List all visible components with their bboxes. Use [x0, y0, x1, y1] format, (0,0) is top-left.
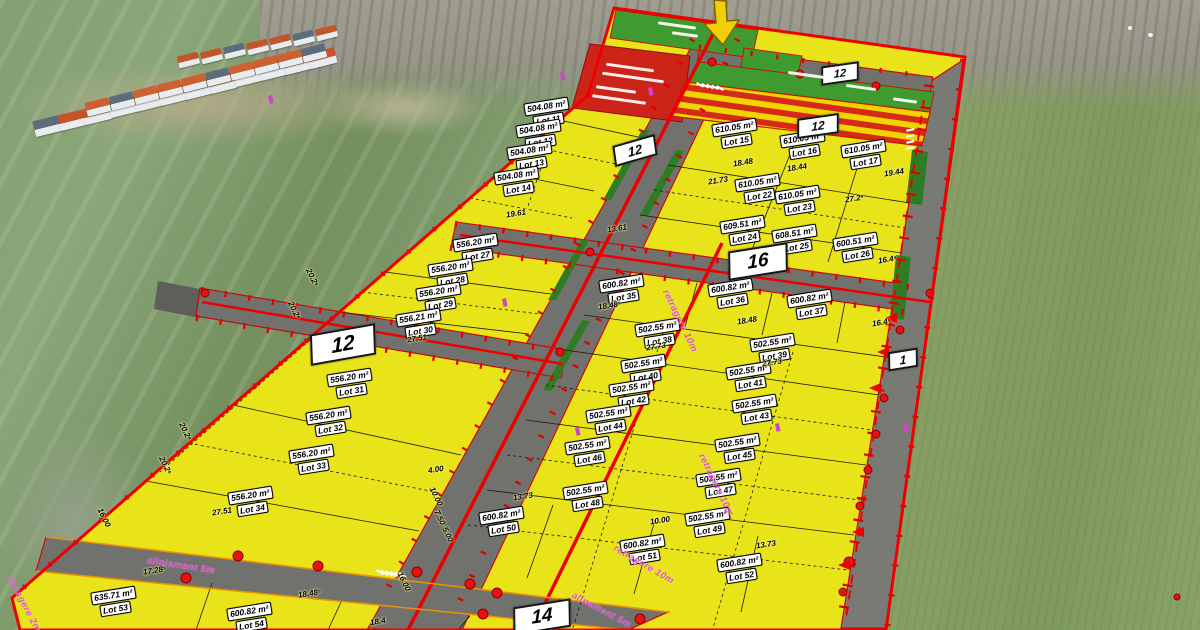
dimension-label: 13.61: [606, 222, 627, 234]
zone-text-mark: [592, 94, 646, 104]
dimension-label: 16.4⁵: [877, 254, 897, 266]
dimension-label: 27.51: [406, 332, 427, 344]
dimension-label: 20.2⁵: [286, 300, 302, 321]
dimension-label: 16.00: [96, 507, 113, 529]
lot-label: 610.05 m²Lot 17: [840, 139, 888, 172]
dimension-label: 19.44: [883, 166, 904, 178]
lot-label: 600.82 m²Lot 37: [786, 289, 834, 322]
lot-label: 600.82 m²Lot 36: [707, 278, 755, 311]
dimension-label: 13.73: [512, 490, 533, 502]
dimension-label: 13.73: [755, 538, 776, 550]
dimension-label: 5.00: [440, 526, 455, 544]
aerial-subdivision-map: 504.08 m²Lot 11504.08 m²Lot 12504.08 m²L…: [0, 0, 1200, 630]
road-badge: 14: [513, 598, 571, 630]
dimension-label: 16.4⁵: [871, 317, 891, 329]
road-badge: 16: [728, 242, 788, 281]
zone-text-mark: [658, 21, 696, 29]
plan-labels: 504.08 m²Lot 11504.08 m²Lot 12504.08 m²L…: [0, 0, 1200, 630]
dimension-label: 19.61: [505, 207, 526, 219]
lot-label: 635.71 m²Lot 53: [90, 586, 138, 619]
road-badge: 1: [888, 347, 918, 371]
lot-label: 600.82 m²Lot 52: [716, 553, 764, 586]
setback-label: retragere 2m: [4, 574, 43, 630]
lot-label: 504.08 m²Lot 14: [493, 166, 541, 199]
dimension-label: 18.44: [786, 161, 807, 173]
lot-label: 502.55 m²Lot 44: [585, 404, 633, 437]
lot-label: 600.51 m²Lot 26: [832, 232, 880, 265]
lot-label: 556.20 m²Lot 33: [288, 444, 336, 477]
zone-text-mark: [893, 97, 917, 103]
lot-label: 600.82 m²Lot 54: [226, 602, 274, 630]
lot-label: 556.20 m²Lot 31: [326, 368, 374, 401]
lot-label: 502.55 m²Lot 43: [731, 394, 779, 427]
dimension-label: 16.00: [396, 571, 413, 593]
dimension-label: 27.73: [761, 356, 782, 368]
dimension-label: 4.00: [427, 464, 444, 475]
dimension-label: 20.2⁵: [304, 267, 320, 288]
road-badge: 12: [797, 113, 839, 139]
dimension-label: 27.51: [211, 505, 232, 517]
lot-label: 502.55 m²Lot 45: [714, 433, 762, 466]
road-badge: 12: [821, 61, 859, 85]
zone-text-mark: [672, 31, 698, 38]
dimension-label: 18.4: [369, 616, 386, 627]
dimension-label: 18.48⁵: [297, 587, 321, 600]
lot-label: 610.05 m²Lot 23: [774, 185, 822, 218]
dimension-label: 20.2⁵: [177, 421, 193, 442]
lot-label: 502.55 m²Lot 48: [562, 481, 610, 514]
dimension-label: 20.2⁵: [157, 455, 173, 476]
dimension-label: 10.00: [649, 514, 670, 526]
dimension-label: 27.73: [645, 340, 666, 352]
lot-label: 600.82 m²Lot 50: [478, 506, 526, 539]
setback-label: alinament 5m: [570, 590, 633, 630]
lot-label: 610.05 m²Lot 15: [711, 118, 759, 151]
zone-text-mark: [596, 85, 636, 94]
zone-text-mark: [602, 72, 664, 84]
zone-text-mark: [846, 84, 876, 91]
dimension-label: 21.73: [707, 174, 728, 186]
dimension-label: 27.2⁵: [844, 193, 864, 205]
lot-label: 556.20 m²Lot 32: [305, 406, 353, 439]
lot-label: 556.20 m²Lot 34: [227, 486, 275, 519]
road-badge: 12: [612, 133, 657, 166]
lot-label: 609.51 m²Lot 24: [719, 215, 767, 248]
zone-text-mark: [606, 63, 654, 73]
dimension-label: 10.00: [428, 486, 445, 508]
dimension-label: 18.48: [736, 314, 757, 326]
road-badge: 12: [310, 323, 376, 366]
dimension-label: 7.50: [432, 509, 447, 527]
dimension-label: 18.48: [732, 156, 753, 168]
lot-label: 502.55 m²Lot 46: [564, 436, 612, 469]
